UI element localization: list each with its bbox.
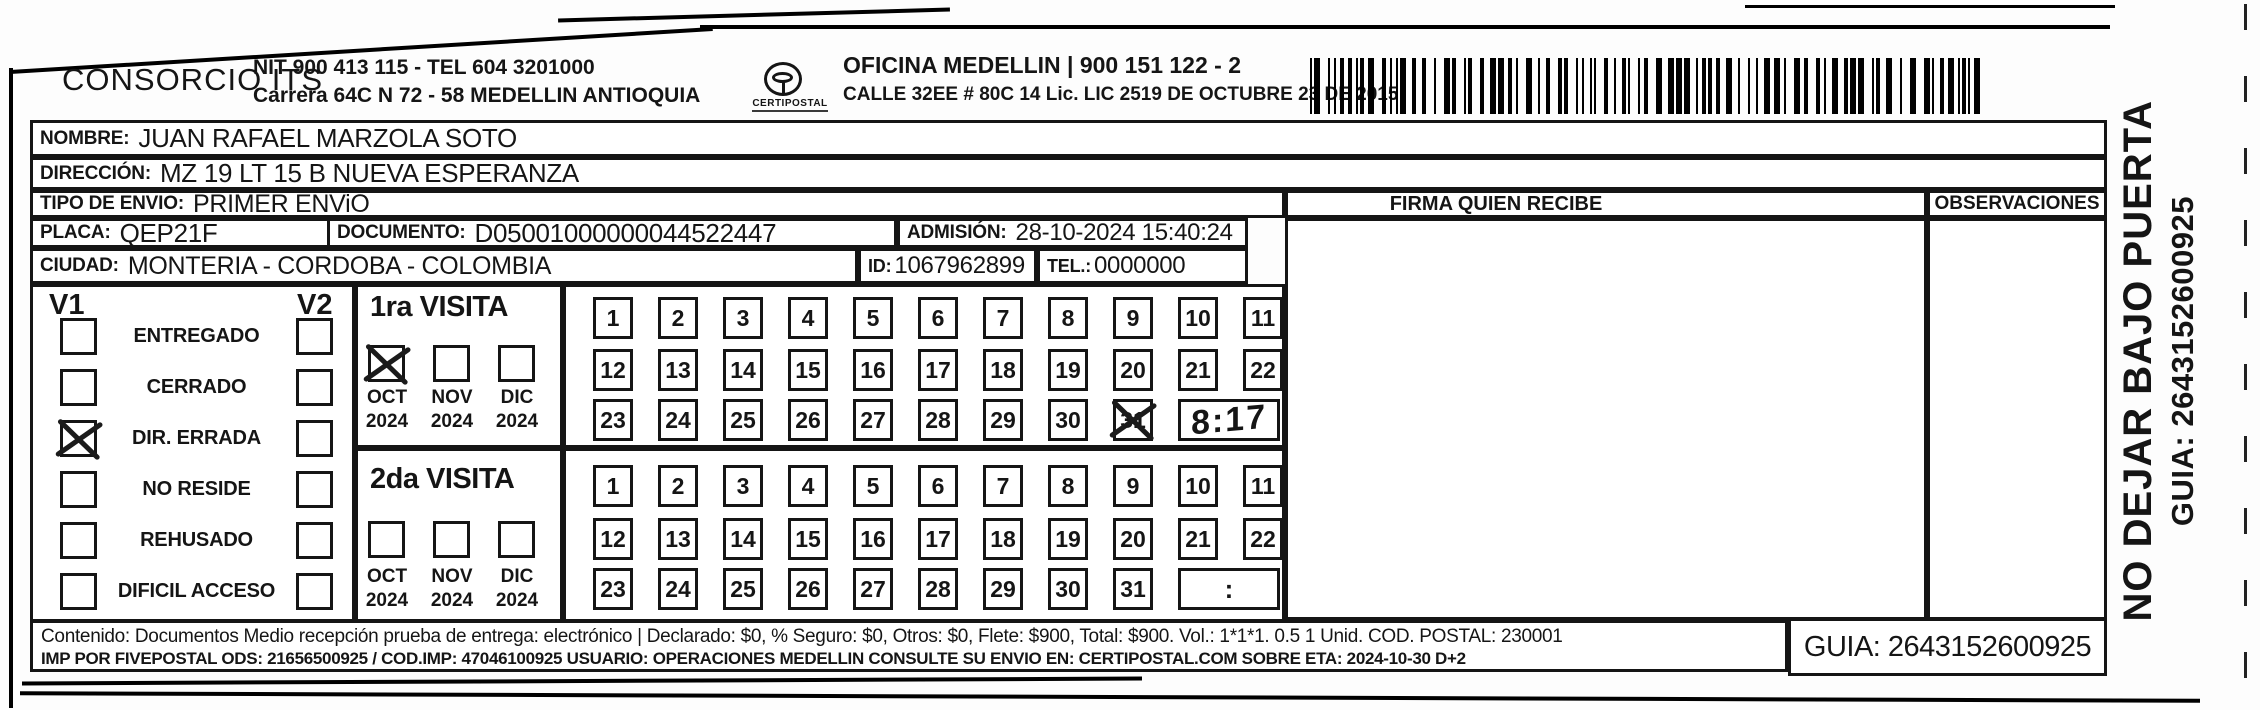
day-number: 10 <box>1185 473 1211 500</box>
barcode-bar <box>1708 58 1712 114</box>
barcode-bar <box>1876 58 1880 114</box>
barcode-bar <box>1644 58 1648 114</box>
day-number: 24 <box>665 576 691 603</box>
day-box-visit2-23[interactable]: 23 <box>593 568 633 610</box>
checkbox-v2-rehusado[interactable] <box>296 522 333 559</box>
barcode-bar <box>1748 58 1750 114</box>
day-box-visit2-14[interactable]: 14 <box>723 518 763 560</box>
checkbox-v1-entregado[interactable] <box>60 318 97 355</box>
barcode-bar <box>1422 58 1426 114</box>
day-number: 18 <box>990 357 1016 384</box>
day-box-visit1-2[interactable]: 2 <box>658 297 698 339</box>
visit-1-panel: 1ra VISITA OCT2024NOV2024DIC2024 <box>355 284 563 448</box>
month-label: DIC <box>489 387 545 409</box>
day-number: 30 <box>1055 407 1081 434</box>
day-number: 4 <box>802 473 815 500</box>
day-box-visit1-24[interactable]: 24 <box>658 399 698 441</box>
day-box-visit1-9[interactable]: 9 <box>1113 297 1153 339</box>
field-documento-label: DOCUMENTO: <box>337 222 466 244</box>
barcode-bar <box>1368 58 1374 114</box>
day-box-visit1-20[interactable]: 20 <box>1113 349 1153 391</box>
barcode-bar <box>1676 58 1682 114</box>
day-box-visit2-18[interactable]: 18 <box>983 518 1023 560</box>
barcode-bar <box>1774 58 1780 114</box>
day-number: 11 <box>1251 305 1275 332</box>
barcode-bar <box>1764 58 1770 114</box>
checkbox-v1-rehusado[interactable] <box>60 522 97 559</box>
day-number: 6 <box>932 305 945 332</box>
day-number: 27 <box>860 576 886 603</box>
barcode-bar <box>1590 58 1592 114</box>
side-warning-text: NO DEJAR BAJO PUERTA <box>2116 100 2161 622</box>
field-admision: ADMISIÓN: 28-10-2024 15:40:24 <box>897 218 1248 248</box>
barcode-bar <box>1968 58 1970 114</box>
day-box-visit2-26[interactable]: 26 <box>788 568 828 610</box>
month-year-label: 2024 <box>424 590 480 612</box>
scan-artifact-line <box>558 8 950 23</box>
barcode-bar <box>1932 58 1934 114</box>
day-number: 15 <box>795 526 821 553</box>
field-direccion: DIRECCIÓN: MZ 19 LT 15 B NUEVA ESPERANZA <box>30 157 2107 190</box>
day-box-visit1-27[interactable]: 27 <box>853 399 893 441</box>
day-box-visit2-27[interactable]: 27 <box>853 568 893 610</box>
barcode-bar <box>1564 58 1568 114</box>
barcode-bar <box>1622 58 1626 114</box>
field-placa-label: PLACA: <box>40 222 111 244</box>
visit-2-day-grid: 1234567891011121314151617181920212223242… <box>563 448 1285 622</box>
checkbox-v1-cerrado[interactable] <box>60 369 97 406</box>
barcode-bar <box>1696 58 1698 114</box>
barcode-bar <box>1412 58 1416 114</box>
day-number: 21 <box>1185 526 1211 553</box>
month-label: DIC <box>489 566 545 588</box>
day-number: 8 <box>1062 473 1075 500</box>
field-tipo-envio: TIPO DE ENVIO: PRIMER ENViO <box>30 190 1285 218</box>
checkbox-v2-entregado[interactable] <box>296 318 333 355</box>
day-number: 28 <box>925 407 951 434</box>
barcode-bar <box>1310 58 1312 114</box>
status-row: NO RESIDE <box>60 471 333 508</box>
day-number: 25 <box>730 576 756 603</box>
barcode-bar <box>1940 58 1944 114</box>
status-row: DIFICIL ACCESO <box>60 573 333 610</box>
day-box-visit2-5[interactable]: 5 <box>853 465 893 507</box>
day-box-visit1-3[interactable]: 3 <box>723 297 763 339</box>
barcode-bar <box>1628 58 1630 114</box>
barcode-bar <box>1594 58 1596 114</box>
day-box-visit1-29[interactable]: 29 <box>983 399 1023 441</box>
scan-artifact-line <box>1745 5 2115 8</box>
status-row: REHUSADO <box>60 522 333 559</box>
scan-artifact-line <box>22 677 1142 686</box>
status-label-entregado: ENTREGADO <box>97 325 296 348</box>
day-number: 17 <box>925 526 951 553</box>
field-ciudad: CIUDAD: MONTERIA - CORDOBA - COLOMBIA <box>30 248 858 284</box>
barcode-bar <box>1604 58 1608 114</box>
day-number: 3 <box>737 305 750 332</box>
barcode-bar <box>1464 58 1466 114</box>
barcode-bar <box>1434 58 1436 114</box>
day-box-visit1-4[interactable]: 4 <box>788 297 828 339</box>
barcode-bar <box>1582 58 1584 114</box>
day-box-visit1-6[interactable]: 6 <box>918 297 958 339</box>
day-number: 8 <box>1062 305 1075 332</box>
barcode-bar <box>1886 58 1892 114</box>
day-number: 13 <box>665 357 691 384</box>
barcode-bar <box>1716 58 1720 114</box>
certipostal-logo: CERTIPOSTAL <box>742 62 838 114</box>
document-top-border <box>700 25 2110 29</box>
day-number: 7 <box>997 473 1010 500</box>
day-box-visit2-24[interactable]: 24 <box>658 568 698 610</box>
day-box-visit1-15[interactable]: 15 <box>788 349 828 391</box>
status-row: ENTREGADO <box>60 318 333 355</box>
barcode-bar <box>1726 58 1732 114</box>
visit-1-title: 1ra VISITA <box>370 291 508 324</box>
day-number: 19 <box>1055 357 1081 384</box>
barcode-bar <box>1638 58 1640 114</box>
day-box-visit2-11[interactable]: 11 <box>1243 465 1283 507</box>
checkbox-v1-dificil-acceso[interactable] <box>60 573 97 610</box>
month-label: OCT <box>359 387 415 409</box>
day-number: 9 <box>1127 473 1140 500</box>
day-box-visit1-28[interactable]: 28 <box>918 399 958 441</box>
field-id-value: 1067962899 <box>894 252 1024 280</box>
day-box-visit1-1[interactable]: 1 <box>593 297 633 339</box>
day-box-visit2-25[interactable]: 25 <box>723 568 763 610</box>
month-label: NOV <box>424 566 480 588</box>
day-box-visit2-2[interactable]: 2 <box>658 465 698 507</box>
barcode-bar <box>1858 58 1864 114</box>
day-box-visit1-17[interactable]: 17 <box>918 349 958 391</box>
barcode-bar <box>1328 58 1330 114</box>
checkbox-visit1-nov[interactable] <box>433 345 470 382</box>
day-box-visit1-22[interactable]: 22 <box>1243 349 1283 391</box>
visit-2-title: 2da VISITA <box>370 463 514 496</box>
barcode-bar <box>1526 58 1532 114</box>
status-row: CERRADO <box>60 369 333 406</box>
day-box-visit1-12[interactable]: 12 <box>593 349 633 391</box>
day-box-visit2-21[interactable]: 21 <box>1178 518 1218 560</box>
guia-number: GUIA: 2643152600925 <box>1804 631 2091 664</box>
scanned-delivery-form: CONSORCIO ITS NIT 900 413 115 - TEL 604 … <box>0 0 2260 710</box>
month-year-label: 2024 <box>489 590 545 612</box>
day-box-visit2-6[interactable]: 6 <box>918 465 958 507</box>
day-box-visit1-19[interactable]: 19 <box>1048 349 1088 391</box>
certipostal-logo-text: CERTIPOSTAL <box>742 98 838 109</box>
day-number: 18 <box>990 526 1016 553</box>
month-year-label: 2024 <box>359 590 415 612</box>
day-box-visit1-23[interactable]: 23 <box>593 399 633 441</box>
page-fold-dashed-line <box>2244 4 2247 708</box>
barcode-bar <box>1400 58 1406 114</box>
visit-1-day-grid: 1234567891011121314151617181920212223242… <box>563 284 1285 448</box>
barcode-bar <box>1824 58 1826 114</box>
status-label-rehusado: REHUSADO <box>97 529 296 552</box>
barcode-bar <box>1948 58 1954 114</box>
status-label-dificil-acceso: DIFICIL ACCESO <box>97 580 296 603</box>
firma-quien-recibe-header: FIRMA QUIEN RECIBE <box>1285 190 1927 218</box>
certipostal-logo-icon <box>764 62 802 96</box>
checkbox-visit1-dic[interactable] <box>498 345 535 382</box>
day-box-visit2-15[interactable]: 15 <box>788 518 828 560</box>
checkbox-visit2-dic[interactable] <box>498 521 535 558</box>
field-id-label: ID: <box>868 256 891 277</box>
day-number: 12 <box>600 357 626 384</box>
day-number: 5 <box>867 305 880 332</box>
day-box-visit1-5[interactable]: 5 <box>853 297 893 339</box>
day-box-visit2-7[interactable]: 7 <box>983 465 1023 507</box>
month-label: NOV <box>424 387 480 409</box>
day-number: 23 <box>600 576 626 603</box>
day-box-visit2-30[interactable]: 30 <box>1048 568 1088 610</box>
status-label-dir-errada: DIR. ERRADA <box>97 427 296 450</box>
barcode-bar <box>1910 58 1916 114</box>
day-box-visit2-12[interactable]: 12 <box>593 518 633 560</box>
checkbox-visit1-oct[interactable] <box>368 345 405 382</box>
day-box-visit2-8[interactable]: 8 <box>1048 465 1088 507</box>
document-left-border <box>9 68 13 708</box>
guia-number-box: GUIA: 2643152600925 <box>1788 618 2107 676</box>
day-number: 21 <box>1185 357 1211 384</box>
day-box-visit2-3[interactable]: 3 <box>723 465 763 507</box>
day-number: 14 <box>730 357 756 384</box>
barcode-bar <box>1668 58 1674 114</box>
day-number: 22 <box>1250 357 1276 384</box>
barcode-bar <box>1816 58 1820 114</box>
field-tel: TEL.: 0000000 <box>1037 248 1248 284</box>
firma-quien-recibe-label: FIRMA QUIEN RECIBE <box>1390 193 1603 216</box>
barcode-bar <box>1794 58 1800 114</box>
day-number: 5 <box>867 473 880 500</box>
day-number: 11 <box>1251 473 1275 500</box>
field-nombre-label: NOMBRE: <box>40 128 129 150</box>
barcode-bar <box>1356 58 1358 114</box>
barcode-bar <box>1872 58 1874 114</box>
day-number: 13 <box>665 526 691 553</box>
day-box-visit1-7[interactable]: 7 <box>983 297 1023 339</box>
scan-artifact-line <box>20 691 2200 703</box>
checkbox-v1-no-reside[interactable] <box>60 471 97 508</box>
barcode-bar <box>1538 58 1540 114</box>
certipostal-logo-tagline <box>752 110 828 112</box>
day-box-visit1-25[interactable]: 25 <box>723 399 763 441</box>
barcode-bar <box>1508 58 1512 114</box>
checkbox-visit2-oct[interactable] <box>368 521 405 558</box>
day-box-visit2-1[interactable]: 1 <box>593 465 633 507</box>
field-nombre-value: JUAN RAFAEL MARZOLA SOTO <box>138 123 517 154</box>
day-box-visit2-10[interactable]: 10 <box>1178 465 1218 507</box>
day-number: 4 <box>802 305 815 332</box>
barcode-bar <box>1396 58 1398 114</box>
barcode-bar <box>1702 58 1706 114</box>
day-number: 12 <box>600 526 626 553</box>
field-direccion-value: MZ 19 LT 15 B NUEVA ESPERANZA <box>160 158 579 189</box>
barcode-bar <box>1962 58 1966 114</box>
day-number: 22 <box>1250 526 1276 553</box>
day-box-visit2-4[interactable]: 4 <box>788 465 828 507</box>
barcode-bar <box>1340 58 1344 114</box>
day-number: 14 <box>730 526 756 553</box>
checkbox-v2-dificil-acceso[interactable] <box>296 573 333 610</box>
company-address-line: Carrera 64C N 72 - 58 MEDELLIN ANTIOQUIA <box>253 84 700 108</box>
checkbox-v1-dir-errada[interactable] <box>60 420 97 457</box>
field-documento: DOCUMENTO: D05001000000044522447 <box>327 218 897 248</box>
barcode-bar <box>1444 58 1450 114</box>
day-number: 30 <box>1055 576 1081 603</box>
barcode-bar <box>1974 58 1980 114</box>
day-box-visit2-16[interactable]: 16 <box>853 518 893 560</box>
barcode-bar <box>1452 58 1456 114</box>
day-number: 16 <box>860 526 886 553</box>
day-number: 28 <box>925 576 951 603</box>
day-number: 7 <box>997 305 1010 332</box>
day-number: 6 <box>932 473 945 500</box>
status-label-cerrado: CERRADO <box>97 376 296 399</box>
day-number: 15 <box>795 357 821 384</box>
day-number: 29 <box>990 576 1016 603</box>
barcode-bar <box>1546 58 1550 114</box>
footer-line1: Contenido: Documentos Medio recepción pr… <box>41 626 1563 648</box>
field-nombre: NOMBRE: JUAN RAFAEL MARZOLA SOTO <box>30 120 2107 157</box>
day-number: 19 <box>1055 526 1081 553</box>
barcode-bar <box>1738 58 1740 114</box>
company-nit-line: NIT 900 413 115 - TEL 604 3201000 <box>253 56 595 80</box>
month-year-label: 2024 <box>424 411 480 433</box>
status-label-no-reside: NO RESIDE <box>97 478 296 501</box>
barcode-bar <box>1850 58 1856 114</box>
month-year-label: 2024 <box>489 411 545 433</box>
barcode-bar <box>1334 58 1336 114</box>
barcode-bar <box>1382 58 1386 114</box>
side-note: NO DEJAR BAJO PUERTA GUIA: 2643152600925 <box>2106 78 2210 644</box>
barcode-bar <box>1756 58 1758 114</box>
field-direccion-label: DIRECCIÓN: <box>40 163 151 185</box>
day-box-visit1-8[interactable]: 8 <box>1048 297 1088 339</box>
day-box-visit1-10[interactable]: 10 <box>1178 297 1218 339</box>
barcode <box>1310 58 1990 114</box>
footer-details: Contenido: Documentos Medio recepción pr… <box>30 620 1788 672</box>
barcode-bar <box>1784 58 1786 114</box>
day-box-visit2-28[interactable]: 28 <box>918 568 958 610</box>
day-box-visit1-21[interactable]: 21 <box>1178 349 1218 391</box>
barcode-bar <box>1924 58 1930 114</box>
day-number: 16 <box>860 357 886 384</box>
day-box-visit2-29[interactable]: 29 <box>983 568 1023 610</box>
field-tipo-envio-label: TIPO DE ENVIO: <box>40 193 184 215</box>
field-id: ID: 1067962899 <box>858 248 1037 284</box>
barcode-bar <box>1900 58 1902 114</box>
day-number: 20 <box>1120 357 1146 384</box>
checkbox-v2-cerrado[interactable] <box>296 369 333 406</box>
firma-quien-recibe-area <box>1285 218 1927 620</box>
barcode-bar <box>1656 58 1662 114</box>
day-box-visit1-11[interactable]: 11 <box>1243 297 1283 339</box>
day-box-visit1-18[interactable]: 18 <box>983 349 1023 391</box>
day-box-visit2-13[interactable]: 13 <box>658 518 698 560</box>
barcode-bar <box>1614 58 1616 114</box>
barcode-bar <box>1480 58 1484 114</box>
office-line: OFICINA MEDELLIN | 900 151 122 - 2 <box>843 52 1241 79</box>
day-box-visit2-9[interactable]: 9 <box>1113 465 1153 507</box>
day-number: 24 <box>665 407 691 434</box>
day-number: 1 <box>607 473 620 500</box>
day-box-visit1-31[interactable]: 31 <box>1113 399 1153 441</box>
side-guia-number: GUIA: 2643152600925 <box>2165 196 2201 526</box>
day-box-visit2-20[interactable]: 20 <box>1113 518 1153 560</box>
day-box-visit1-14[interactable]: 14 <box>723 349 763 391</box>
day-box-visit2-22[interactable]: 22 <box>1243 518 1283 560</box>
checkbox-v2-dir-errada[interactable] <box>296 420 333 457</box>
field-placa-value: QEP21F <box>120 218 218 248</box>
day-number: 17 <box>925 357 951 384</box>
barcode-bar <box>1558 58 1562 114</box>
footer-line2: IMP POR FIVEPOSTAL ODS: 21656500925 / CO… <box>41 649 1466 669</box>
barcode-bar <box>1844 58 1848 114</box>
barcode-bar <box>1490 58 1496 114</box>
barcode-bar <box>1958 58 1960 114</box>
handwritten-time: 8:17 <box>1191 397 1267 443</box>
time-box-visit1[interactable]: 8:17 <box>1178 399 1280 441</box>
field-tel-label: TEL.: <box>1047 256 1091 277</box>
day-box-visit2-19[interactable]: 19 <box>1048 518 1088 560</box>
day-number: 26 <box>795 407 821 434</box>
barcode-bar <box>1832 58 1838 114</box>
field-admision-label: ADMISIÓN: <box>907 222 1007 244</box>
month-year-label: 2024 <box>359 411 415 433</box>
field-ciudad-label: CIUDAD: <box>40 255 119 277</box>
day-number: 27 <box>860 407 886 434</box>
observaciones-header: OBSERVACIONES <box>1927 190 2107 218</box>
time-box-visit2[interactable]: : <box>1178 568 1280 610</box>
day-number: 25 <box>730 407 756 434</box>
day-number: 31 <box>1120 576 1146 603</box>
checkbox-visit2-nov[interactable] <box>433 521 470 558</box>
day-number: 1 <box>607 305 620 332</box>
barcode-bar <box>1468 58 1472 114</box>
field-admision-value: 28-10-2024 15:40:24 <box>1016 219 1233 247</box>
field-tipo-envio-value: PRIMER ENViO <box>193 190 370 218</box>
day-number: 26 <box>795 576 821 603</box>
observaciones-area <box>1927 218 2107 620</box>
barcode-bar <box>1314 58 1320 114</box>
day-box-visit2-31[interactable]: 31 <box>1113 568 1153 610</box>
status-panel: V1 V2 ENTREGADOCERRADODIR. ERRADANO RESI… <box>30 284 355 622</box>
field-documento-value: D05001000000044522447 <box>475 218 777 248</box>
field-ciudad-value: MONTERIA - CORDOBA - COLOMBIA <box>128 252 551 281</box>
barcode-bar <box>1360 58 1364 114</box>
status-row: DIR. ERRADA <box>60 420 333 457</box>
day-number: 23 <box>600 407 626 434</box>
barcode-bar <box>1348 58 1352 114</box>
day-number: 10 <box>1185 305 1211 332</box>
checkbox-v2-no-reside[interactable] <box>296 471 333 508</box>
barcode-bar <box>1576 58 1578 114</box>
day-box-visit1-13[interactable]: 13 <box>658 349 698 391</box>
day-box-visit1-26[interactable]: 26 <box>788 399 828 441</box>
day-number: 2 <box>672 473 685 500</box>
observaciones-label: OBSERVACIONES <box>1934 193 2099 215</box>
day-box-visit1-30[interactable]: 30 <box>1048 399 1088 441</box>
field-tel-value: 0000000 <box>1094 252 1185 280</box>
barcode-bar <box>1498 58 1504 114</box>
field-placa: PLACA: QEP21F <box>30 218 330 248</box>
day-box-visit1-16[interactable]: 16 <box>853 349 893 391</box>
day-number: 3 <box>737 473 750 500</box>
time-placeholder: : <box>1225 574 1234 605</box>
day-box-visit2-17[interactable]: 17 <box>918 518 958 560</box>
barcode-bar <box>1390 58 1392 114</box>
